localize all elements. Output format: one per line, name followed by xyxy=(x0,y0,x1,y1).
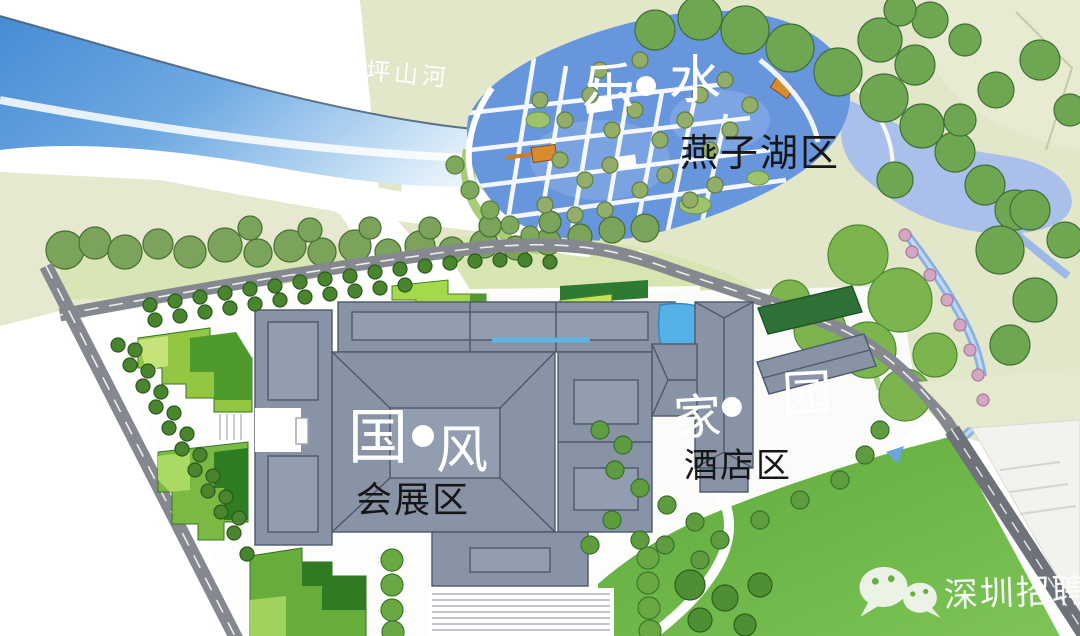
svg-text:乐: 乐 xyxy=(582,59,634,119)
hotel-zone-label: 酒店区 xyxy=(684,446,792,486)
masterplan-map: 坪山河 乐 水 燕子湖区 国 风 会展区 家 园 酒店区 xyxy=(0,0,1080,636)
svg-text:园: 园 xyxy=(781,364,834,425)
svg-text:水: 水 xyxy=(669,51,721,111)
lake-zone-label: 燕子湖区 xyxy=(680,131,840,175)
expo-zone-label: 会展区 xyxy=(356,480,470,521)
watermark-text: 深圳招聘会 xyxy=(943,570,1080,616)
svg-text:国: 国 xyxy=(348,403,408,473)
map-canvas: 坪山河 乐 水 燕子湖区 国 风 会展区 家 园 酒店区 xyxy=(0,0,1080,636)
svg-text:家: 家 xyxy=(672,389,723,447)
theme-dot xyxy=(636,76,656,96)
theme-dot xyxy=(412,425,434,447)
svg-text:风: 风 xyxy=(436,421,488,481)
